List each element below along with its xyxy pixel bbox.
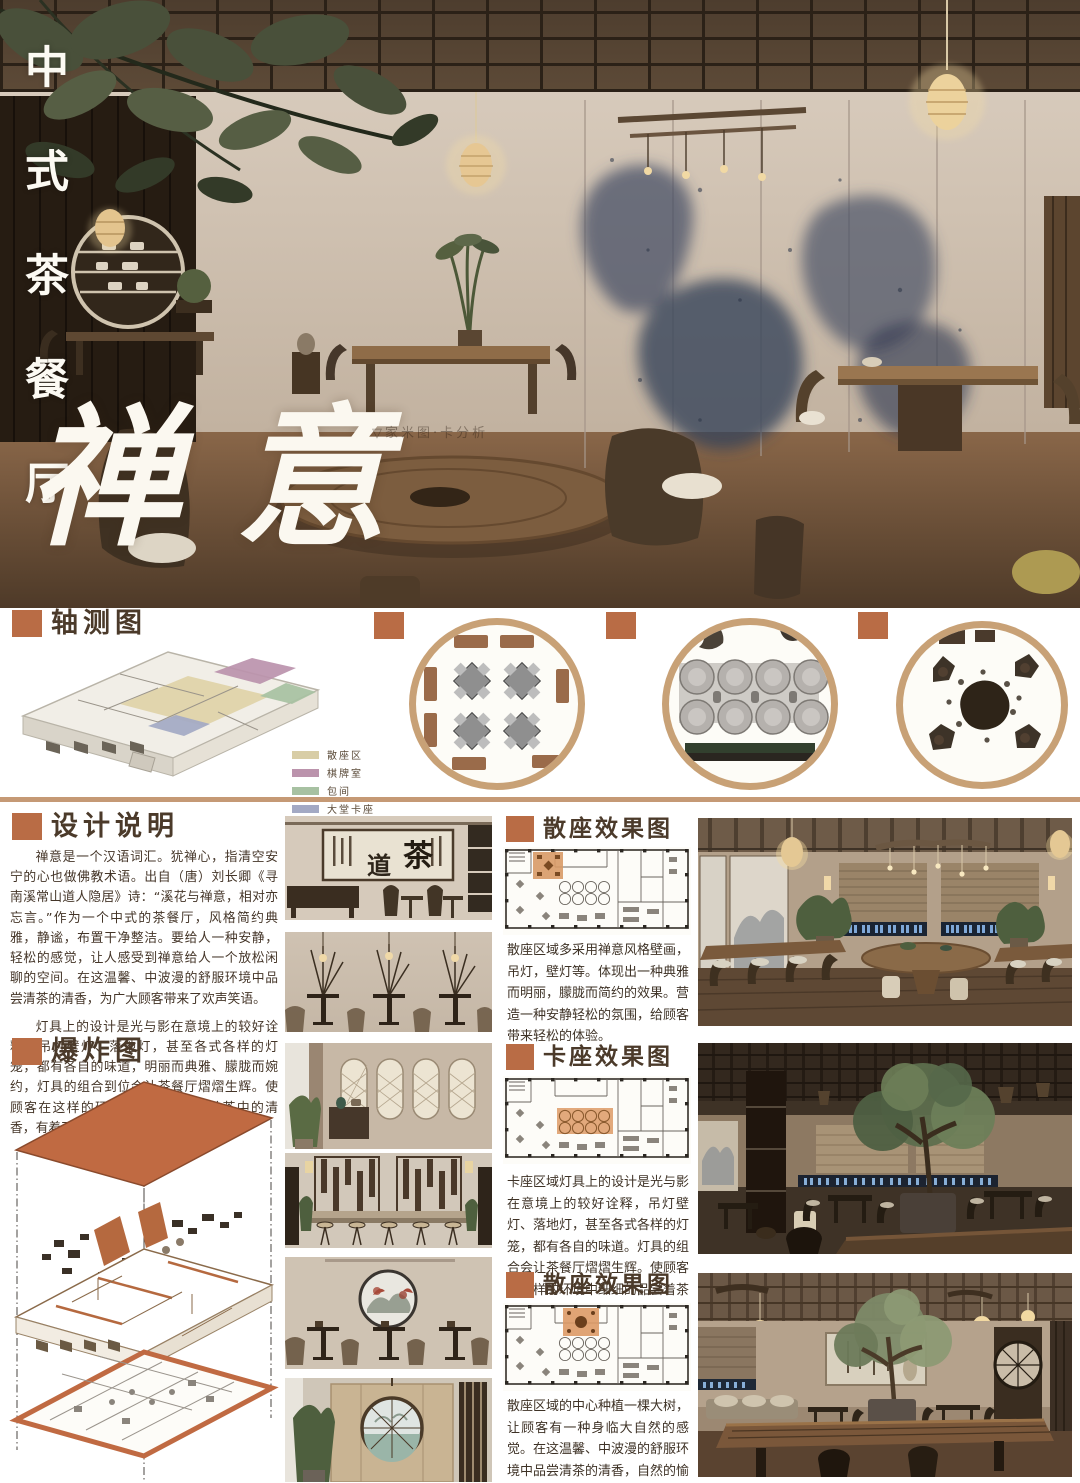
elevation-calligraphy-wall: 茶 道 bbox=[285, 816, 492, 920]
legend-swatch bbox=[292, 805, 319, 813]
legend-item: 棋牌室 bbox=[292, 765, 375, 780]
legend-item: 包间 bbox=[292, 783, 375, 798]
pendant-lantern-right bbox=[909, 0, 985, 140]
header-accent-square bbox=[506, 816, 534, 842]
legend-label: 大堂卡座 bbox=[327, 801, 375, 816]
section-header-effect-1: 散座效果图 bbox=[506, 816, 673, 842]
calligraphy-cha: 茶 bbox=[403, 839, 434, 874]
section-title-design: 设计说明 bbox=[51, 813, 179, 840]
legend-label: 散座区 bbox=[327, 747, 363, 762]
render-photo-loose-seating bbox=[698, 818, 1072, 1026]
header-accent-square bbox=[12, 610, 42, 637]
plan-detail-circle-tables bbox=[409, 618, 585, 790]
hero-main-title: 禅意 bbox=[28, 388, 444, 570]
hero-watermark: ▽家米图·卡分析 bbox=[372, 422, 488, 441]
plan-detail-circle-plants bbox=[896, 621, 1068, 789]
section-title-exploded: 爆炸图 bbox=[51, 1038, 147, 1065]
floor-plan-effect-2 bbox=[503, 1076, 691, 1164]
design-poster: 中式茶餐厅 禅意 ▽家米图·卡分析 轴测图 散座区 bbox=[0, 0, 1080, 1483]
axon-legend: 散座区 棋牌室 包间 大堂卡座 bbox=[292, 747, 375, 816]
effect-text-2: 卡座区域灯具上的设计是光与影在意境上的较好诠释，吊灯壁灯、落地灯，甚至各式各样的… bbox=[507, 1172, 689, 1323]
legend-item: 大堂卡座 bbox=[292, 801, 375, 816]
render-photo-booth-hall bbox=[698, 1043, 1072, 1254]
legend-swatch bbox=[292, 787, 319, 795]
pendant-lantern-center bbox=[446, 92, 506, 195]
legend-item: 散座区 bbox=[292, 747, 375, 762]
section-divider bbox=[0, 797, 1080, 802]
section-title-effect-3: 散座效果图 bbox=[543, 1274, 673, 1297]
calligraphy-dao: 道 bbox=[367, 852, 391, 880]
section-header-design: 设计说明 bbox=[12, 813, 179, 840]
section-header-exploded: 爆炸图 bbox=[12, 1038, 147, 1065]
elevation-round-painting bbox=[285, 1257, 492, 1369]
legend-swatch bbox=[292, 751, 319, 759]
section-title-effect-2: 卡座效果图 bbox=[543, 1046, 673, 1069]
section-title-effect-1: 散座效果图 bbox=[543, 818, 673, 841]
elevation-lattice-windows bbox=[285, 1043, 492, 1149]
effect-text-1: 散座区域多采用禅意风格壁画，吊灯，壁灯等。体现出一种典雅而明丽，朦胧而简约的效果… bbox=[507, 940, 689, 1048]
plan-detail-circle-booths bbox=[662, 618, 838, 790]
elevation-bar-screens bbox=[285, 1153, 492, 1248]
header-accent-square bbox=[506, 1044, 534, 1070]
header-accent-square bbox=[506, 1272, 534, 1298]
design-paragraph-1: 禅意是一个汉语词汇。犹禅心，指清空安宁的心也做佛教术语。出自（唐）刘长卿《寻南溪… bbox=[10, 848, 278, 1010]
floor-plan-effect-3 bbox=[503, 1303, 691, 1391]
floor-plan-effect-1 bbox=[503, 847, 691, 935]
elevation-branch-tables bbox=[285, 932, 492, 1032]
right-table bbox=[796, 357, 1080, 451]
effect-text-3: 散座区域的中心种植一棵大树，让顾客有一种身临大自然的感觉。在这温馨、中波漫的舒服… bbox=[507, 1396, 689, 1483]
elevation-moon-window bbox=[285, 1378, 492, 1482]
vase-stand bbox=[292, 333, 320, 394]
header-accent-square bbox=[12, 813, 42, 840]
section-title-axon: 轴测图 bbox=[51, 610, 147, 637]
exploded-axon-drawing bbox=[2, 1062, 284, 1482]
small-lantern bbox=[88, 208, 132, 252]
accent-square bbox=[858, 612, 888, 639]
accent-square bbox=[374, 612, 404, 639]
legend-swatch bbox=[292, 769, 319, 777]
accent-square bbox=[606, 612, 636, 639]
section-header-effect-2: 卡座效果图 bbox=[506, 1044, 673, 1070]
legend-label: 包间 bbox=[327, 783, 351, 798]
axon-model bbox=[8, 634, 338, 784]
hanging-rack bbox=[618, 110, 806, 181]
tall-plant bbox=[433, 233, 502, 358]
section-header-effect-3: 散座效果图 bbox=[506, 1272, 673, 1298]
hero-photo: 中式茶餐厅 禅意 ▽家米图·卡分析 bbox=[0, 0, 1080, 608]
render-photo-tree-hall bbox=[698, 1273, 1072, 1477]
header-accent-square bbox=[12, 1038, 42, 1065]
legend-label: 棋牌室 bbox=[327, 765, 363, 780]
section-header-axon: 轴测图 bbox=[12, 610, 147, 637]
